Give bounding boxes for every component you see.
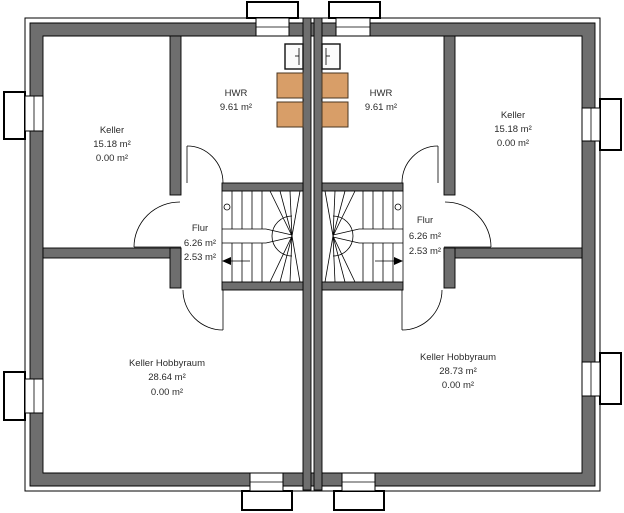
room-label-hwr-right-area1: 9.61 m² (365, 102, 397, 113)
party-wall-right-leaf (314, 18, 322, 490)
stair-walkline-start (224, 204, 230, 210)
cabinet-body (285, 44, 303, 69)
floor-plan-drawing: Keller 15.18 m² 0.00 m² HWR 9.61 m² HWR … (0, 0, 624, 513)
light-well (247, 2, 298, 18)
wall-flur-hobbyraum (444, 248, 455, 288)
window (582, 362, 600, 396)
stair-walkline-start (395, 204, 401, 210)
light-well (334, 491, 384, 510)
light-well (242, 491, 292, 510)
hwr-appliance (322, 102, 348, 127)
room-label-keller-right-area2: 0.00 m² (497, 138, 529, 149)
room-label-keller-left-area2: 0.00 m² (96, 153, 128, 164)
room-label-flur-right-area1: 6.26 m² (409, 231, 441, 242)
wall-stair-top (322, 183, 403, 191)
room-label-hwr-left-area1: 9.61 m² (220, 102, 252, 113)
room-label-hobbyraum-right-name: Keller Hobbyraum (420, 352, 496, 363)
wall-keller-hwr (170, 36, 181, 195)
wall-keller-hobbyraum (43, 248, 181, 258)
light-well (4, 92, 25, 139)
room-label-flur-right-area2: 2.53 m² (409, 246, 441, 257)
cabinet-body (322, 44, 340, 69)
room-label-keller-left-name: Keller (100, 125, 124, 136)
hwr-appliance (277, 73, 303, 98)
hwr-appliance (277, 102, 303, 127)
floor-plan-canvas: Keller 15.18 m² 0.00 m² HWR 9.61 m² HWR … (0, 0, 624, 513)
wall-keller-hobbyraum (444, 248, 582, 258)
room-label-hwr-right-name: HWR (370, 88, 393, 99)
room-label-keller-right-name: Keller (501, 110, 525, 121)
window (256, 18, 289, 36)
window (342, 473, 375, 491)
room-label-flur-left-name: Flur (192, 223, 208, 234)
room-label-flur-left-area2: 2.53 m² (184, 252, 216, 263)
light-well (329, 2, 380, 18)
room-label-keller-right-area1: 15.18 m² (494, 124, 532, 135)
room-label-flur-right-name: Flur (417, 215, 433, 226)
window (250, 473, 283, 491)
wall-stair-top (222, 183, 303, 191)
room-label-hobbyraum-left-area2: 0.00 m² (151, 387, 183, 398)
hwr-wall-cabinet (322, 44, 340, 69)
window (25, 379, 43, 413)
hwr-wall-cabinet (285, 44, 303, 69)
room-label-hobbyraum-left-name: Keller Hobbyraum (129, 358, 205, 369)
window (582, 108, 600, 141)
hwr-appliance (322, 73, 348, 98)
wall-keller-hwr (444, 36, 455, 195)
window (25, 96, 43, 131)
party-wall-left-leaf (303, 18, 311, 490)
room-label-flur-left-area1: 6.26 m² (184, 238, 216, 249)
room-label-hobbyraum-right-area1: 28.73 m² (439, 366, 477, 377)
light-well (600, 99, 621, 150)
wall-flur-hobbyraum (170, 248, 181, 288)
room-label-hobbyraum-left-area1: 28.64 m² (148, 372, 186, 383)
window (336, 18, 370, 36)
room-label-hobbyraum-right-area2: 0.00 m² (442, 380, 474, 391)
room-label-keller-left-area1: 15.18 m² (93, 139, 131, 150)
wall-stair-bottom (322, 282, 403, 290)
room-label-hwr-left-name: HWR (225, 88, 248, 99)
wall-stair-bottom (222, 282, 303, 290)
light-well (4, 372, 25, 420)
light-well (600, 353, 621, 404)
